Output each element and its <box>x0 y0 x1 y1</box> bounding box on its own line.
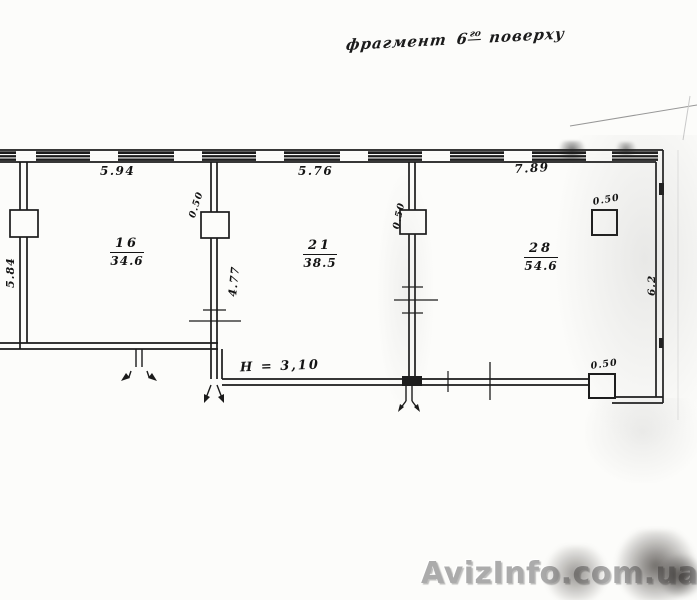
room-28-area: 54.6 <box>516 258 566 273</box>
title-floor-ordinal: го <box>468 29 482 41</box>
room-21-area: 38.5 <box>295 255 345 270</box>
room-28-number: 28 <box>524 241 558 258</box>
dimension-top-room21: 5.76 <box>298 164 333 178</box>
ceiling-height-note: H = 3,10 <box>240 358 320 376</box>
dimension-right-wall: 6.2 <box>646 275 658 296</box>
left-wall-pilaster <box>10 210 38 237</box>
room-28-label: 28 54.6 <box>516 237 566 273</box>
floor-plan-drawing <box>0 0 697 600</box>
divider1-pilaster <box>201 212 229 238</box>
door-symbol-divider2 <box>398 386 420 412</box>
dimension-top-room16: 5.94 <box>100 164 135 178</box>
room-21-label: 21 38.5 <box>295 234 345 270</box>
top-wall-with-windows <box>0 150 663 162</box>
left-exterior-wall <box>10 162 38 349</box>
room16-bottom-wall <box>0 343 218 349</box>
right-wall-mark <box>659 183 664 195</box>
right-wall-mark <box>659 338 663 348</box>
room-21-number: 21 <box>303 238 337 255</box>
room-16-area: 34.6 <box>102 253 152 268</box>
corridor-wall <box>222 349 592 400</box>
room-16-label: 16 34.6 <box>102 232 152 268</box>
dimension-left-wall: 5.84 <box>4 257 17 288</box>
scanned-floor-plan-page: фрагмент6гоповерху 5.94 5.76 7.89 5.84 0… <box>0 0 697 600</box>
dimension-top-room28: 7.89 <box>514 160 550 176</box>
column-lower <box>589 374 615 398</box>
lower-right-wall <box>612 397 663 403</box>
watermark-avizinfo: AvizInfo.com.ua <box>421 556 697 591</box>
room-16-number: 16 <box>110 236 144 253</box>
column-upper <box>592 210 617 235</box>
paper-fold-lines <box>570 96 697 420</box>
door-symbol-corridor-left <box>204 385 224 403</box>
door-symbol-room16 <box>121 349 157 381</box>
divider-wall-2 <box>394 162 438 386</box>
